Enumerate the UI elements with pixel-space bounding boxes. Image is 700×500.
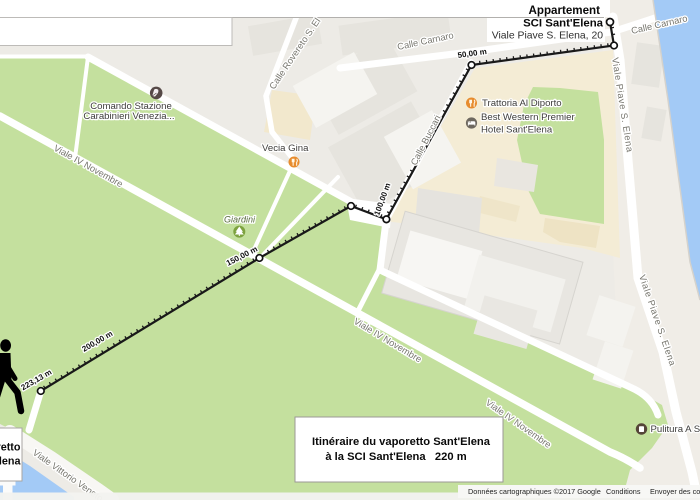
svg-text:Carabinieri Venezia...: Carabinieri Venezia... <box>83 111 174 122</box>
svg-text:Viale Piave S. Elena, 20: Viale Piave S. Elena, 20 <box>492 31 604 42</box>
svg-text:Sant'Elena: Sant'Elena <box>0 456 21 468</box>
svg-text:SCI Sant'Elena: SCI Sant'Elena <box>523 18 604 30</box>
svg-text:Best Western Premier: Best Western Premier <box>481 112 575 123</box>
svg-text:Hotel Sant'Elena: Hotel Sant'Elena <box>481 125 553 136</box>
svg-text:vaporetto: vaporetto <box>0 442 21 454</box>
svg-text:Appartement: Appartement <box>528 4 600 17</box>
svg-text:Itinéraire du vaporetto Sant'E: Itinéraire du vaporetto Sant'Elena <box>312 436 491 448</box>
svg-text:Trattoria Al Diporto: Trattoria Al Diporto <box>482 98 562 109</box>
svg-text:Giardini: Giardini <box>224 215 256 225</box>
svg-text:Conditions: Conditions <box>606 487 641 496</box>
svg-text:Vecia Gina: Vecia Gina <box>262 143 309 154</box>
svg-text:à la SCI Sant'Elena 220 m: à la SCI Sant'Elena 220 m <box>325 451 466 463</box>
svg-text:Données cartographiques ©2017: Données cartographiques ©2017 Google <box>468 487 601 496</box>
svg-text:Envoyer des comm: Envoyer des comm <box>650 487 700 496</box>
svg-text:Pulitura A Sec: Pulitura A Sec <box>651 424 700 435</box>
